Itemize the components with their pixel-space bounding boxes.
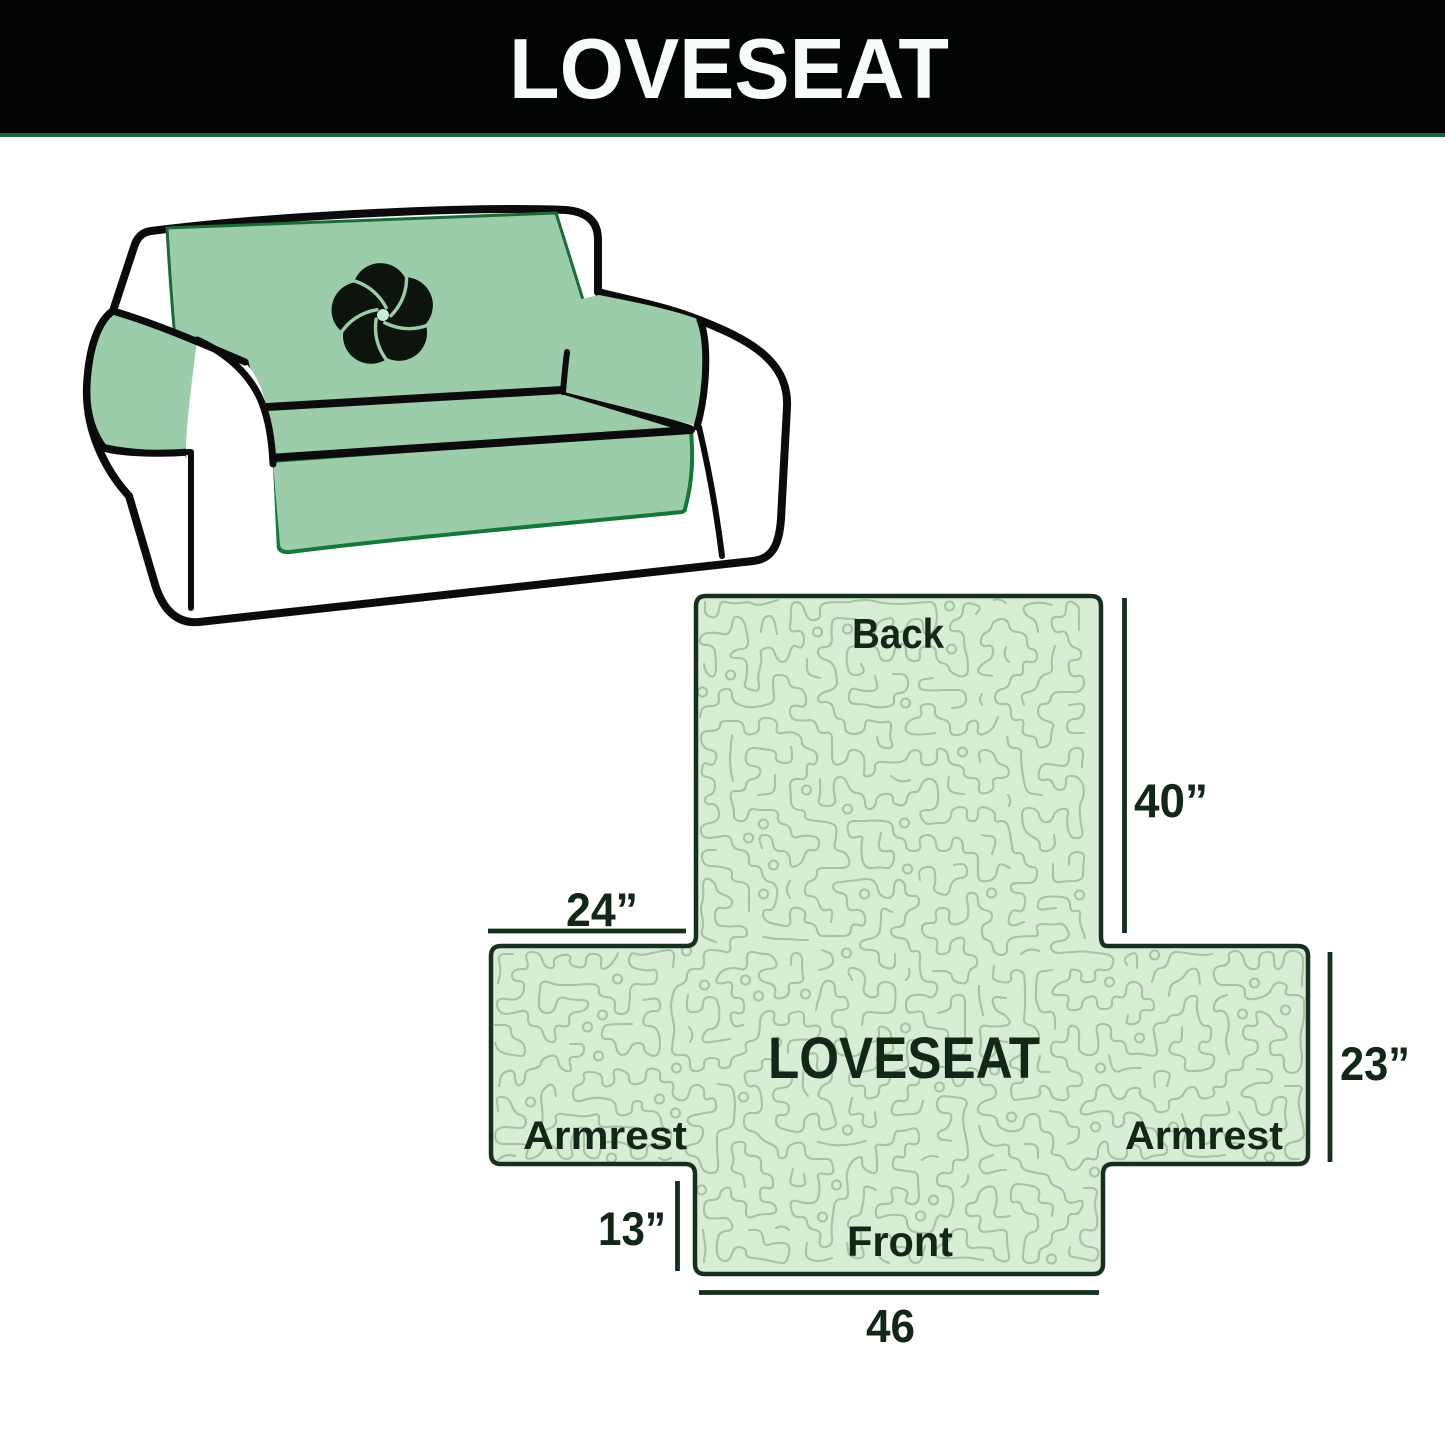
- svg-text:Front: Front: [847, 1218, 953, 1266]
- svg-text:24”: 24”: [566, 883, 638, 936]
- svg-text:46: 46: [866, 1300, 915, 1352]
- svg-text:Armrest: Armrest: [1125, 1114, 1283, 1158]
- svg-text:Back: Back: [852, 610, 945, 657]
- svg-text:Armrest: Armrest: [523, 1114, 687, 1158]
- svg-text:13”: 13”: [598, 1202, 666, 1255]
- svg-text:40”: 40”: [1134, 774, 1208, 827]
- svg-text:LOVESEAT: LOVESEAT: [768, 1026, 1040, 1091]
- svg-text:LOVESEAT: LOVESEAT: [509, 22, 949, 117]
- svg-text:23”: 23”: [1340, 1037, 1410, 1090]
